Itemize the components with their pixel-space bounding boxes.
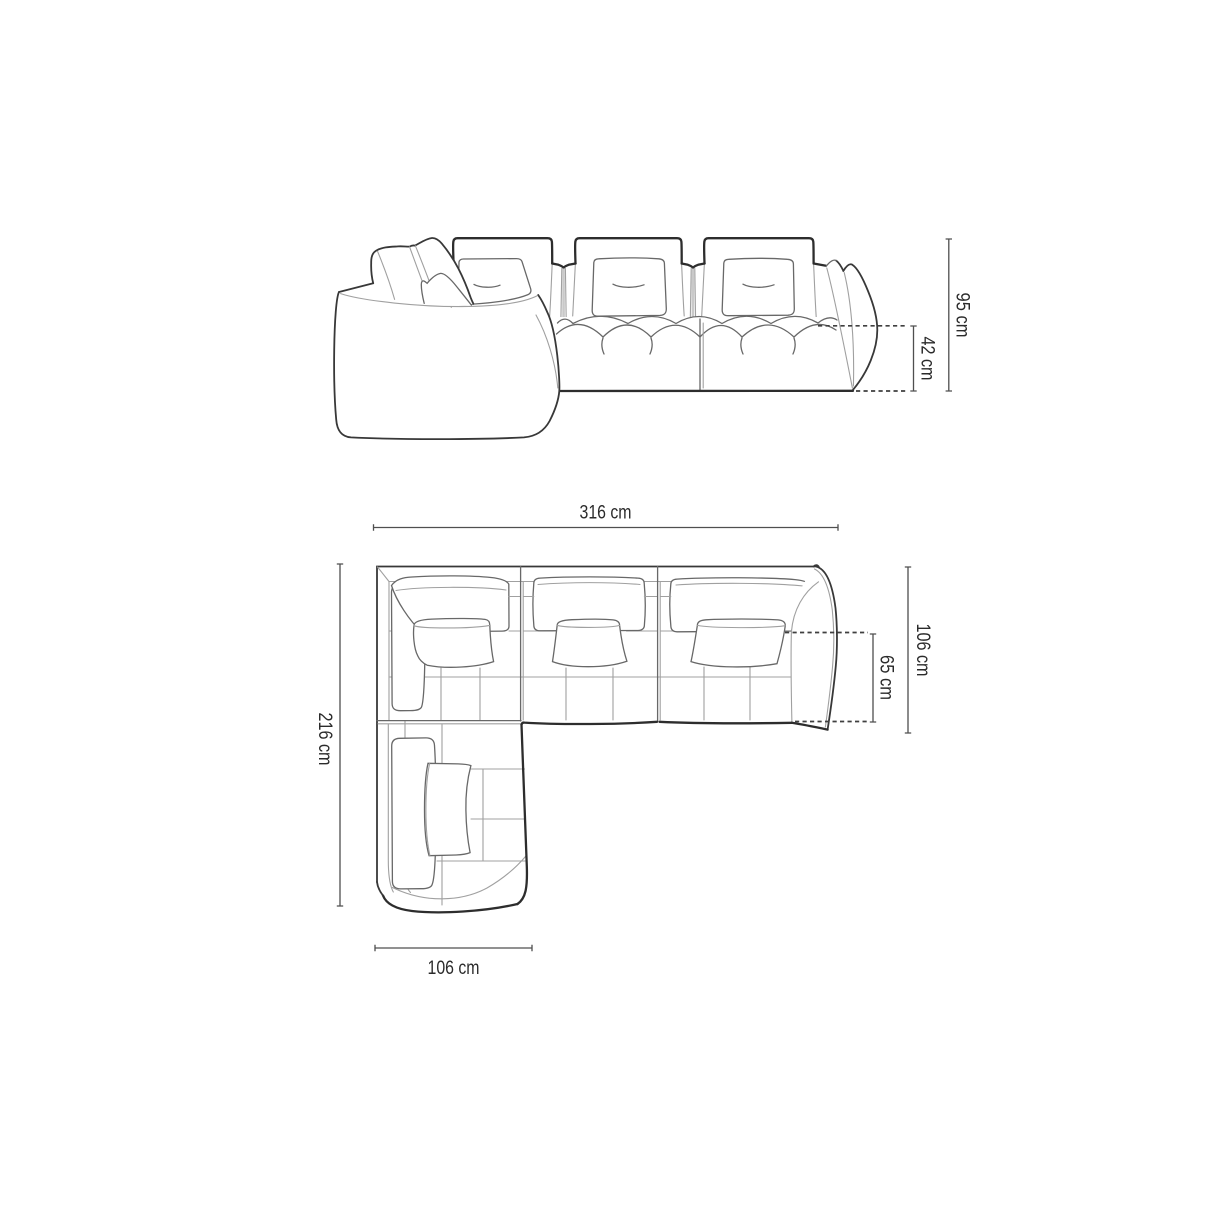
svg-text:106 cm: 106 cm [912, 624, 933, 677]
svg-text:316 cm: 316 cm [580, 503, 632, 524]
svg-text:216 cm: 216 cm [314, 713, 335, 766]
svg-text:65 cm: 65 cm [876, 655, 897, 700]
svg-text:42 cm: 42 cm [917, 337, 938, 381]
svg-text:106 cm: 106 cm [428, 958, 480, 979]
svg-text:95 cm: 95 cm [952, 293, 973, 338]
